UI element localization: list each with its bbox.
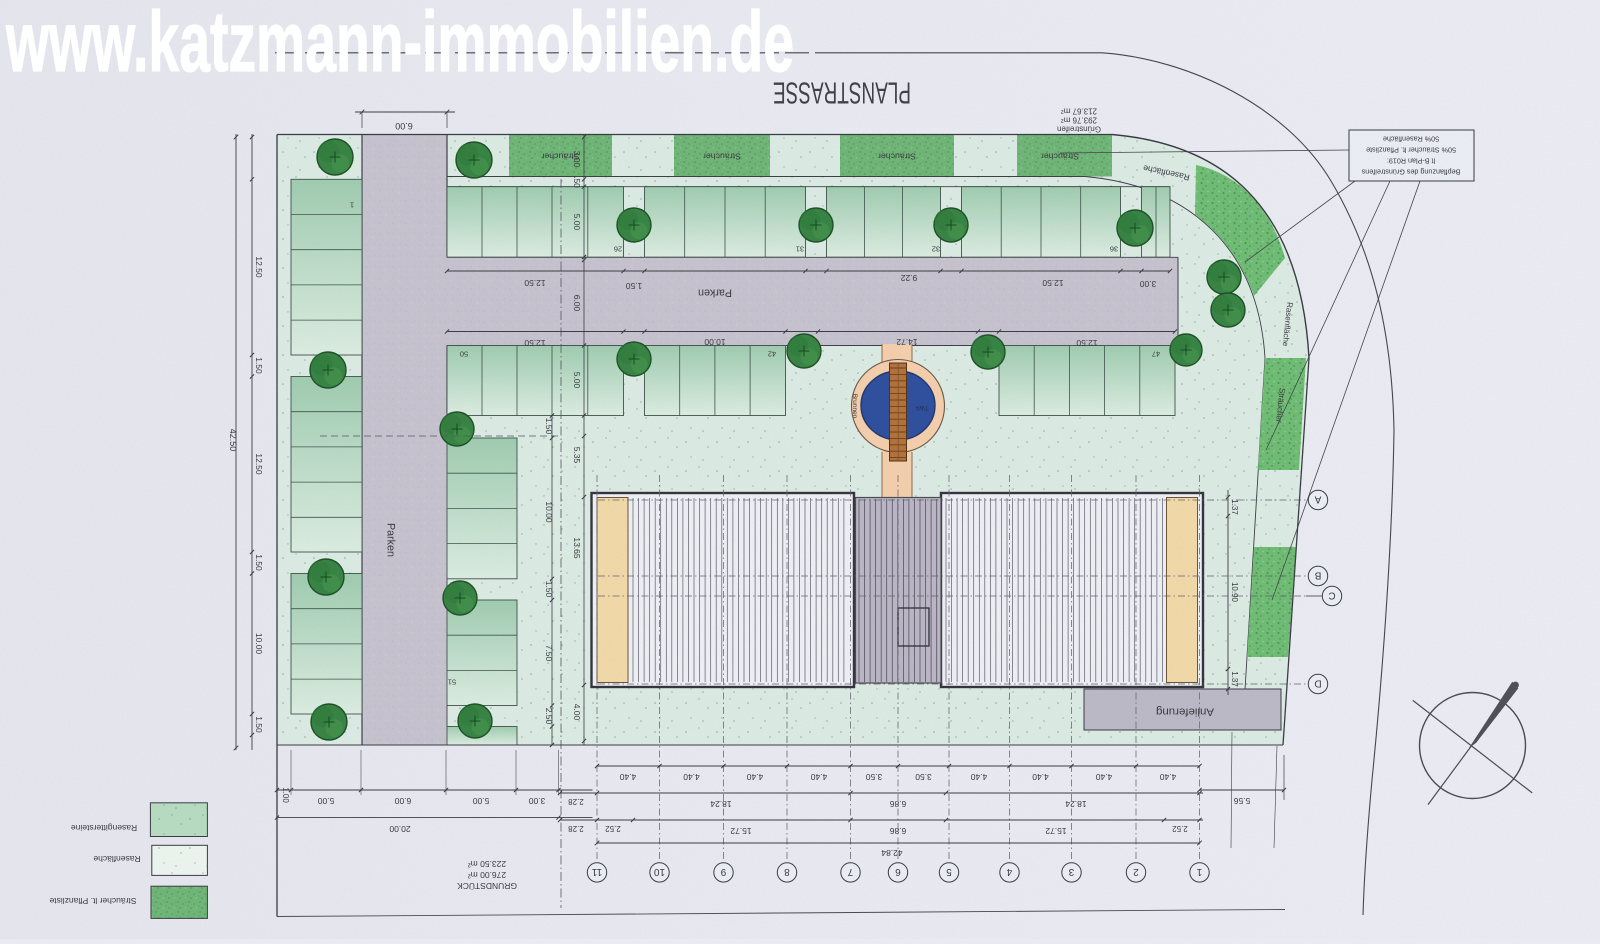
svg-text:www.katzmann-immobilien.de: www.katzmann-immobilien.de xyxy=(5,0,794,90)
